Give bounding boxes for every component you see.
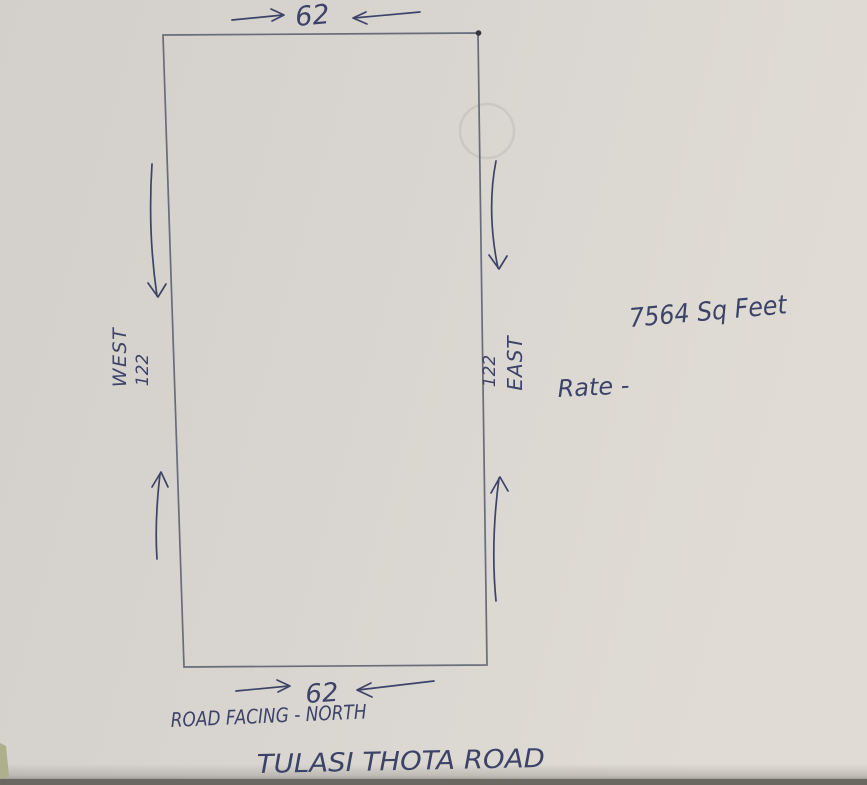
rate-label: Rate - <box>557 371 630 403</box>
sketch-canvas: 62 WEST 122 122 EAST 7564 Sq Feet Rate -… <box>0 0 867 785</box>
top-width-label: 62 <box>294 0 331 33</box>
land-plot-sketch-photo: 62 WEST 122 122 EAST 7564 Sq Feet Rate -… <box>0 0 867 785</box>
east-length-label: 122 <box>480 355 500 387</box>
west-direction-label: WEST <box>109 327 131 387</box>
photo-bottom-edge-dark <box>0 779 867 785</box>
west-length-label: 122 <box>133 354 153 386</box>
paper-background <box>0 0 867 785</box>
road-name-label: TULASI THOTA ROAD <box>257 744 546 780</box>
east-direction-label: EAST <box>503 335 527 391</box>
corner-dot <box>476 30 482 36</box>
